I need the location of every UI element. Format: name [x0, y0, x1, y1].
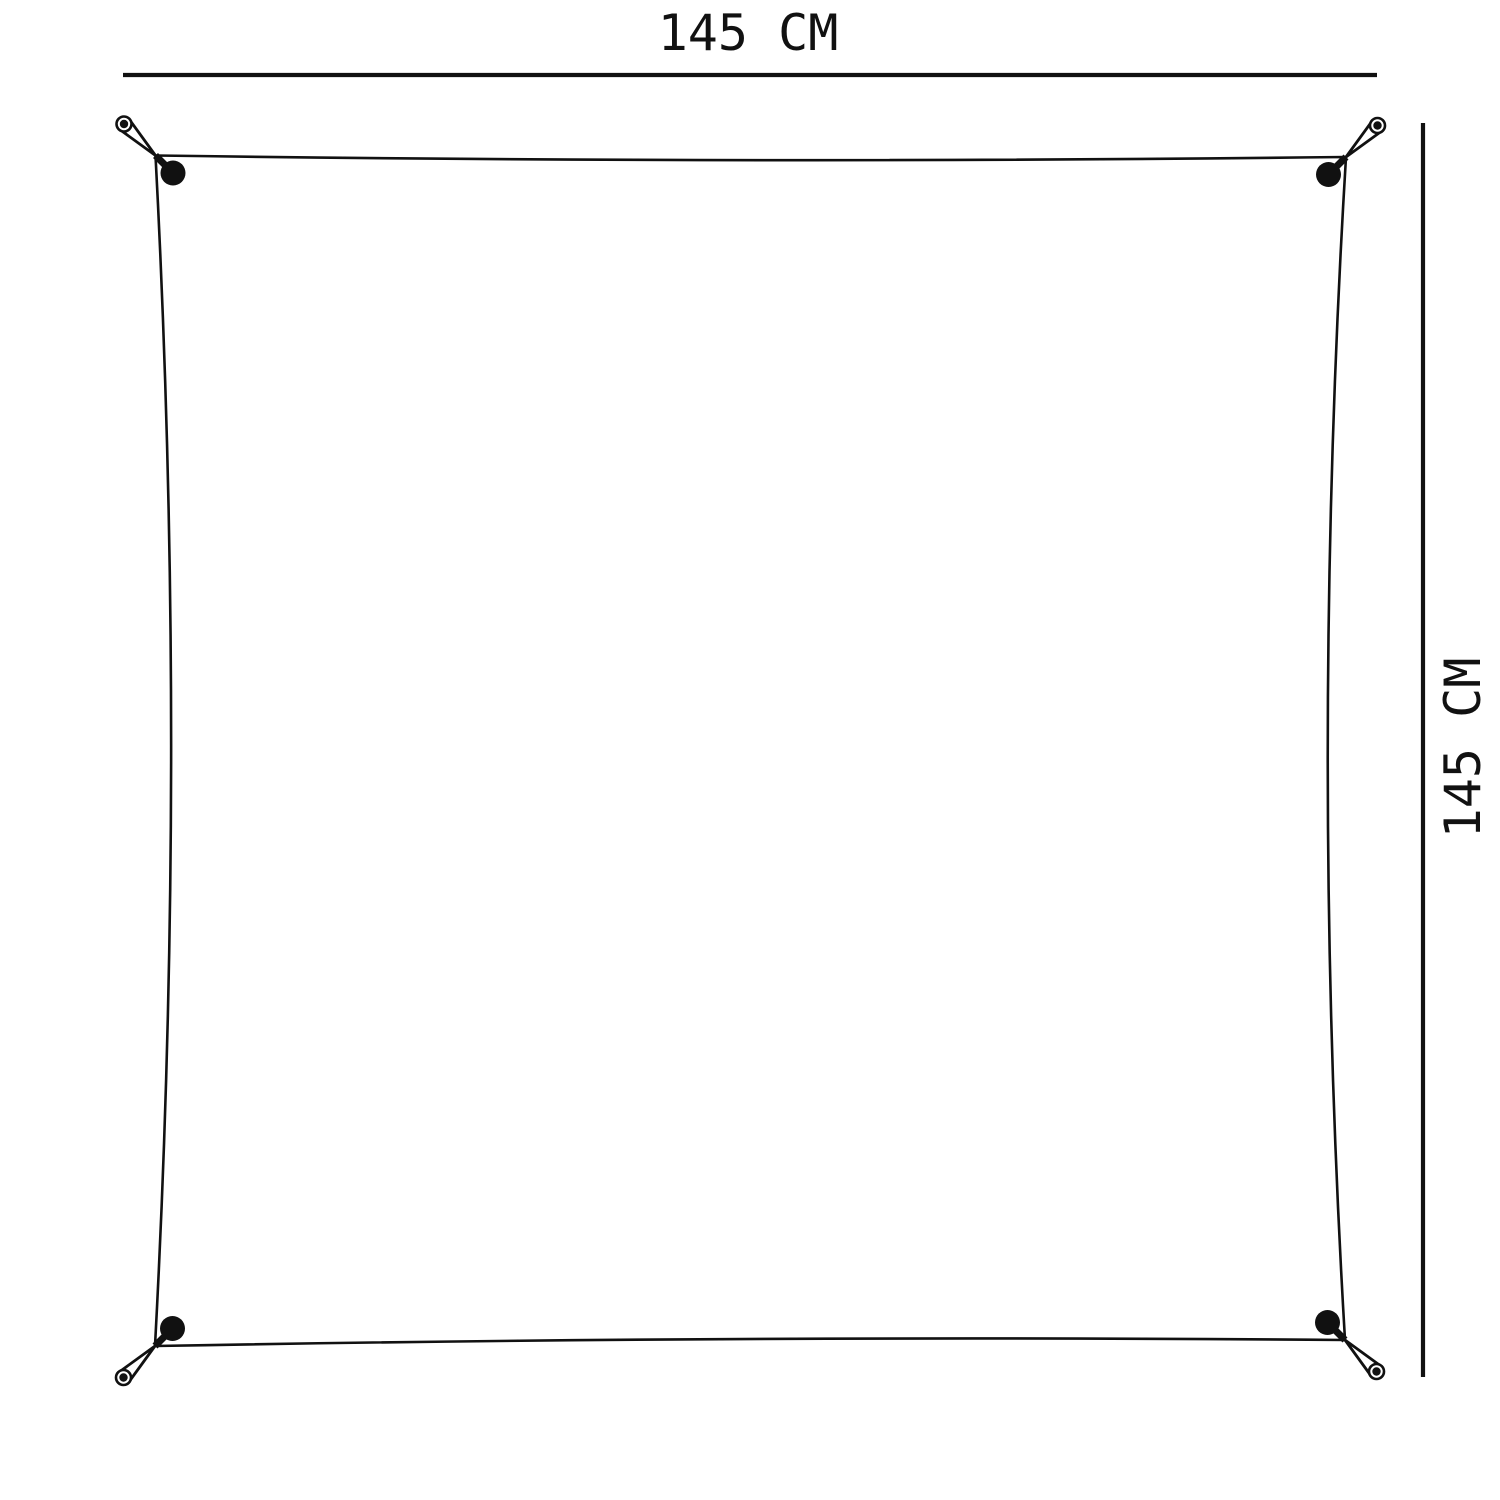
stake-icon-bottom-left: [116, 1316, 185, 1385]
stake-icon-top-left: [117, 117, 186, 186]
tarp-outline: [155, 156, 1346, 1347]
width-label: 145 CM: [658, 4, 839, 63]
stake-icon-bottom-right: [1315, 1310, 1384, 1379]
diagram-canvas: [0, 0, 1500, 1500]
stake-icon-top-right: [1316, 118, 1385, 187]
product-dimension-diagram: 145 CM 145 CM: [0, 0, 1500, 1500]
height-label: 145 CM: [1434, 658, 1493, 839]
